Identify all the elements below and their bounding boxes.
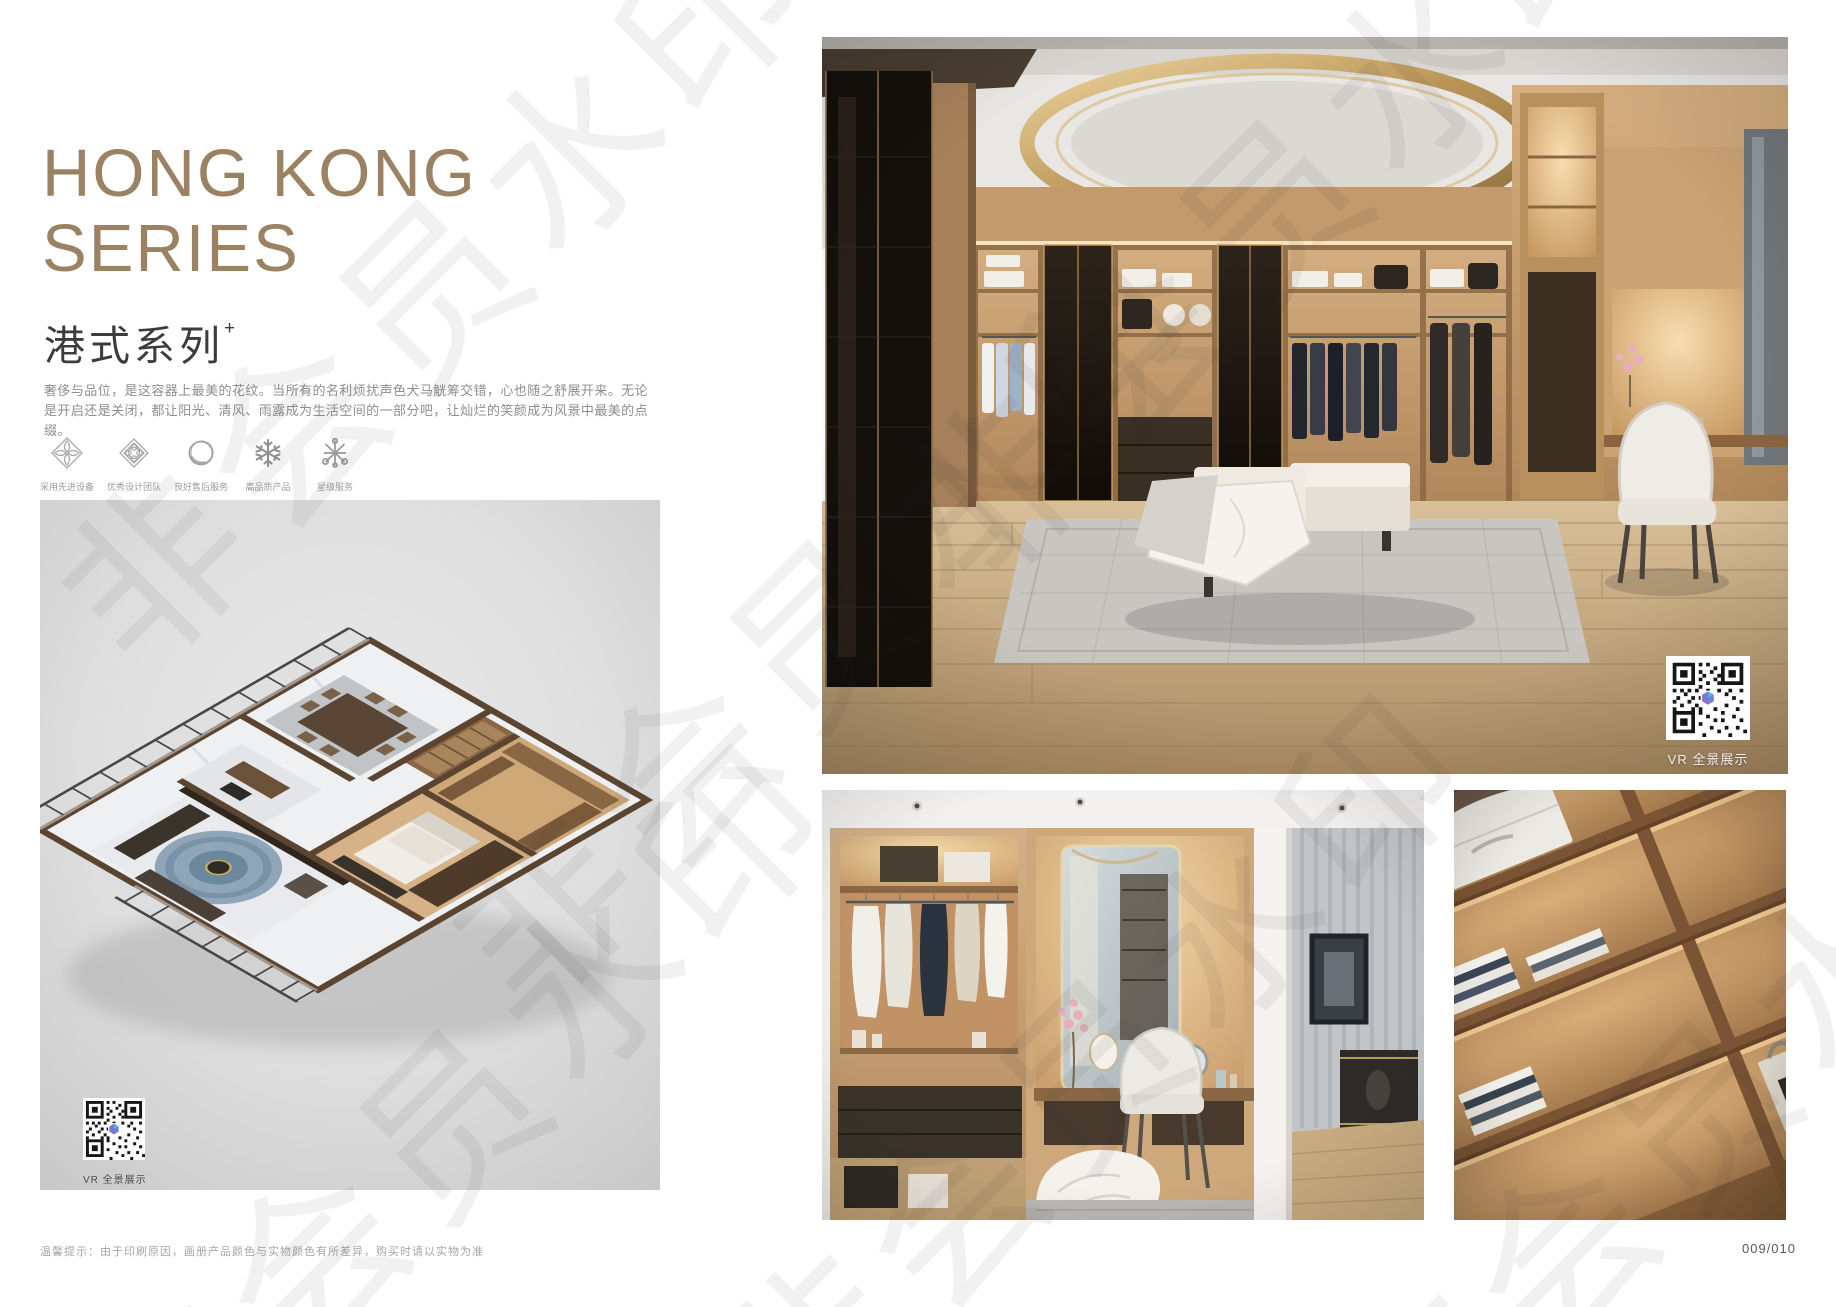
feature-label: 优秀设计团队 [107, 480, 161, 493]
series-title-line2: SERIES [42, 211, 477, 286]
walk-in-closet-illustration [822, 37, 1788, 774]
floor-plan-image: VR 全景展示 [40, 500, 660, 1190]
star-service-icon [318, 436, 352, 470]
print-disclaimer: 温馨提示：由于印刷原因，画册产品颜色与实物颜色有所差异，购买时请以实物为准 [40, 1243, 484, 1259]
floor-plan-vr-block: VR 全景展示 [83, 1098, 193, 1186]
ring-icon [184, 436, 218, 470]
feature-label: 星级服务 [308, 480, 362, 493]
series-subtitle-plus: + [224, 318, 235, 339]
feature-star-service: 星级服务 [308, 436, 362, 493]
floor-plan-illustration [40, 500, 660, 1190]
shelf-detail-illustration [1454, 790, 1786, 1220]
series-title-line1: HONG KONG [42, 136, 477, 211]
snowflake-icon [251, 436, 285, 470]
feature-quality-product: 高品质产品 [241, 436, 295, 493]
feature-list: 采用先进设备 优秀设计团队 [40, 436, 362, 493]
series-subtitle-cn: 港式系列 [44, 323, 224, 369]
feature-design-team: 优秀设计团队 [107, 436, 161, 493]
feature-advanced-equipment: 采用先进设备 [40, 436, 94, 493]
flower-diamond-icon [50, 436, 84, 470]
feature-after-sales: 良好售后服务 [174, 436, 228, 493]
walk-in-closet-photo: VR 全景展示 [822, 37, 1788, 774]
qr-code [83, 1098, 145, 1160]
vanity-closet-illustration [822, 790, 1424, 1220]
feature-label: 高品质产品 [241, 480, 295, 493]
shelf-detail-photo [1454, 790, 1786, 1220]
page-number: 009/010 [1742, 1241, 1796, 1256]
vr-panorama-label: VR 全景展示 [1666, 749, 1750, 768]
feature-label: 采用先进设备 [40, 480, 94, 493]
series-title: HONG KONG SERIES [42, 136, 477, 286]
feature-label: 良好售后服务 [174, 480, 228, 493]
qr-code [1666, 656, 1750, 740]
main-photo-vr-block: VR 全景展示 [1666, 656, 1750, 768]
series-description: 奢侈与品位，是这容器上最美的花纹。当所有的名利烦扰声色犬马觥筹交错，心也随之舒展… [44, 381, 648, 441]
vanity-closet-photo [822, 790, 1424, 1220]
series-subtitle: 港式系列+ [44, 312, 235, 372]
rosette-icon [117, 436, 151, 470]
vr-panorama-label: VR 全景展示 [83, 1171, 193, 1186]
catalog-page: HONG KONG SERIES 港式系列+ 奢侈与品位，是这容器上最美的花纹。… [0, 0, 1836, 1307]
